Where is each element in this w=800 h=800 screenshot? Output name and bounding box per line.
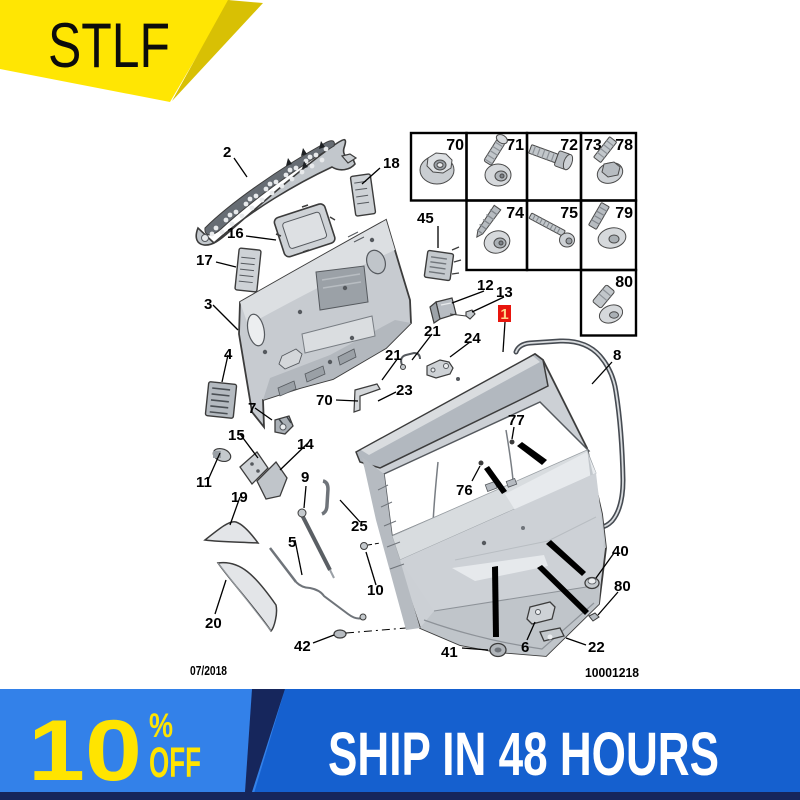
svg-text:20: 20 bbox=[205, 615, 222, 632]
svg-text:8: 8 bbox=[613, 347, 621, 364]
svg-text:19: 19 bbox=[231, 489, 248, 506]
svg-text:4: 4 bbox=[224, 346, 233, 363]
svg-text:80: 80 bbox=[615, 274, 633, 291]
svg-text:21: 21 bbox=[424, 323, 441, 340]
svg-text:2: 2 bbox=[223, 144, 231, 161]
svg-text:14: 14 bbox=[297, 436, 314, 453]
svg-text:15: 15 bbox=[228, 427, 245, 444]
svg-text:77: 77 bbox=[508, 412, 525, 429]
svg-text:78: 78 bbox=[615, 137, 633, 154]
svg-text:OFF: OFF bbox=[149, 739, 201, 787]
svg-text:1: 1 bbox=[500, 306, 508, 323]
svg-text:5: 5 bbox=[288, 534, 296, 551]
svg-text:18: 18 bbox=[383, 155, 400, 172]
svg-text:25: 25 bbox=[351, 518, 368, 535]
svg-text:SHIP IN 48 HOURS: SHIP IN 48 HOURS bbox=[328, 720, 719, 788]
svg-text:17: 17 bbox=[196, 252, 213, 269]
svg-text:10: 10 bbox=[367, 582, 384, 599]
svg-text:75: 75 bbox=[560, 205, 578, 222]
svg-text:13: 13 bbox=[496, 284, 513, 301]
svg-text:70: 70 bbox=[316, 392, 333, 409]
svg-text:71: 71 bbox=[506, 137, 524, 154]
svg-text:24: 24 bbox=[464, 330, 481, 347]
svg-text:45: 45 bbox=[417, 210, 434, 227]
svg-text:10: 10 bbox=[28, 703, 142, 799]
svg-text:23: 23 bbox=[396, 382, 413, 399]
svg-text:7: 7 bbox=[248, 400, 256, 417]
svg-text:10001218: 10001218 bbox=[585, 666, 639, 680]
svg-text:6: 6 bbox=[521, 639, 529, 656]
svg-text:STLF: STLF bbox=[48, 11, 170, 81]
svg-text:74: 74 bbox=[506, 205, 524, 222]
svg-text:80: 80 bbox=[614, 578, 631, 595]
svg-text:12: 12 bbox=[477, 277, 494, 294]
svg-text:42: 42 bbox=[294, 638, 311, 655]
svg-text:41: 41 bbox=[441, 644, 458, 661]
svg-text:11: 11 bbox=[196, 474, 212, 491]
svg-text:70: 70 bbox=[446, 137, 464, 154]
svg-text:16: 16 bbox=[227, 225, 244, 242]
svg-text:21: 21 bbox=[385, 347, 402, 364]
svg-text:76: 76 bbox=[456, 482, 473, 499]
svg-text:07/2018: 07/2018 bbox=[190, 664, 227, 678]
svg-text:79: 79 bbox=[615, 205, 633, 222]
svg-text:40: 40 bbox=[612, 543, 629, 560]
svg-text:9: 9 bbox=[301, 469, 309, 486]
svg-text:3: 3 bbox=[204, 296, 212, 313]
svg-text:22: 22 bbox=[588, 639, 605, 656]
